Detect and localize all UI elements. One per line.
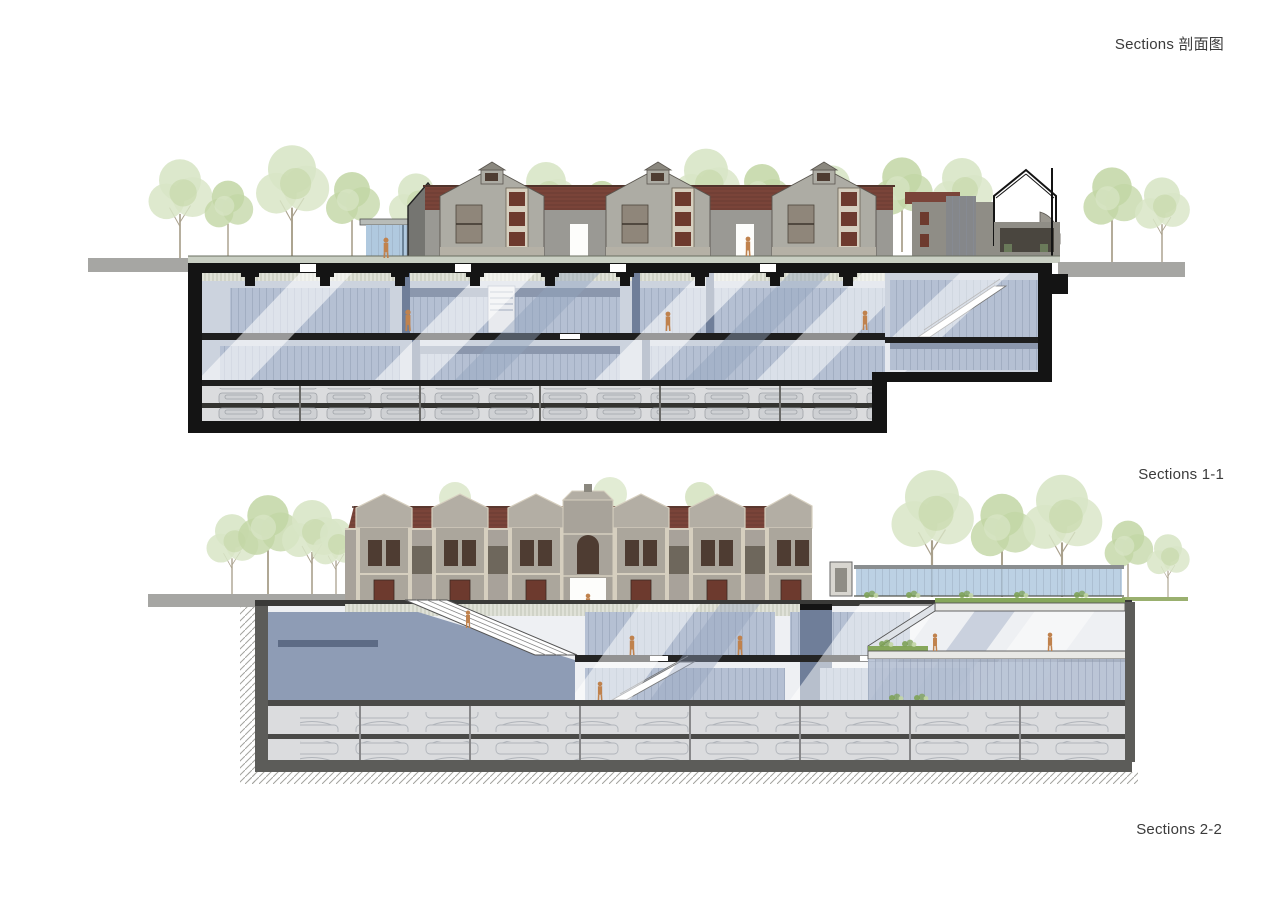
basement-structure-section1 [188, 263, 917, 433]
retaining-wall-right [1125, 602, 1135, 762]
ground-slab-left [88, 258, 190, 272]
page-title: Sections 剖面图 [1115, 33, 1224, 54]
right-wing-bottom-slab [885, 372, 1052, 382]
gabled-bay [613, 494, 669, 612]
gable-house-unit [772, 162, 876, 258]
basement-right-wall [1038, 263, 1052, 382]
bottom-slab [255, 760, 1132, 772]
b3-b4-slab [268, 734, 1132, 739]
earth-hatch-left [240, 606, 255, 784]
basement-structure-section2 [240, 598, 1138, 784]
gabled-bay [508, 494, 564, 612]
basement-left-wall [188, 263, 202, 433]
parking-cars-row [300, 741, 1120, 760]
lane-gap [736, 224, 754, 258]
gabled-bay [689, 494, 745, 612]
section-1-1-label: Sections 1-1 [1138, 466, 1224, 483]
tree [256, 145, 329, 258]
factory-window-band [488, 546, 508, 574]
factory-window-band [669, 546, 689, 574]
tree [1147, 534, 1190, 600]
gabled-bay [432, 494, 488, 612]
historic-factory-building [345, 484, 812, 614]
tree [1083, 167, 1142, 262]
b2-b3-slab [268, 700, 1132, 706]
basement-bottom-slab [188, 421, 887, 433]
b2-b3-slab [202, 380, 885, 386]
b1-b2-slab [202, 333, 885, 340]
ground-slab-right [1058, 262, 1185, 277]
earth-hatch-bottom [248, 772, 1138, 784]
sections-sheet [0, 0, 1280, 904]
gabled-bay [765, 494, 812, 612]
basement-step-wall [872, 372, 887, 432]
poche-wall-block [268, 612, 418, 704]
factory-window-band [412, 546, 432, 574]
parking-cars-row [212, 407, 877, 421]
tree [149, 159, 213, 258]
section-2-2-label: Sections 2-2 [1136, 821, 1222, 838]
retaining-wall-left [255, 606, 268, 772]
plaza-paving [188, 256, 1060, 263]
gate-structure [830, 562, 852, 596]
factory-window-band [745, 546, 765, 574]
parking-cars-row [300, 712, 1120, 732]
section-2-2-drawing [148, 470, 1190, 784]
parking-cars-row [212, 388, 877, 403]
tree [1135, 177, 1190, 262]
lane-gap [570, 224, 588, 258]
central-entrance-tower [563, 484, 613, 612]
section-1-1-drawing [88, 145, 1190, 433]
gabled-bay [356, 494, 412, 612]
